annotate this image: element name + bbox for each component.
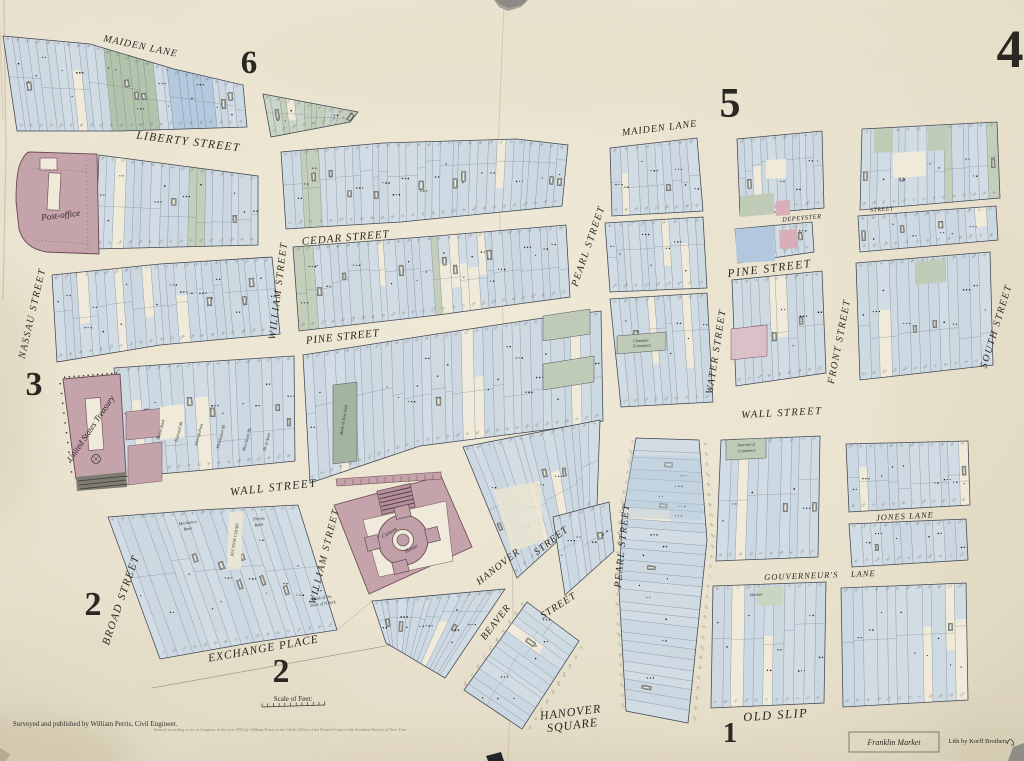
svg-text:60: 60 [568, 664, 572, 668]
svg-text:100: 100 [556, 681, 560, 687]
svg-text:5: 5 [720, 81, 741, 127]
svg-text:Lith by Korff Brothers: Lith by Korff Brothers [949, 738, 1008, 745]
svg-text:4: 4 [997, 19, 1024, 79]
svg-text:1: 1 [723, 717, 738, 749]
svg-text:Bank: Bank [254, 522, 263, 528]
svg-text:140: 140 [562, 672, 566, 678]
svg-text:128: 128 [545, 698, 549, 704]
svg-text:Entered according to act of Co: Entered according to act of Congress in … [154, 727, 408, 732]
svg-text:Market: Market [749, 592, 763, 598]
svg-text:19: 19 [534, 717, 538, 721]
svg-text:18: 18 [528, 725, 532, 729]
svg-text:18: 18 [501, 629, 505, 633]
svg-text:Franklin Market: Franklin Market [866, 738, 921, 747]
svg-text:131: 131 [514, 611, 518, 617]
svg-text:24: 24 [476, 664, 480, 668]
svg-text:3: 3 [26, 366, 43, 403]
svg-text:18: 18 [573, 655, 577, 659]
svg-text:67: 67 [482, 655, 486, 659]
svg-text:99: 99 [507, 620, 511, 624]
svg-text:107: 107 [551, 689, 555, 695]
svg-text:102: 102 [463, 681, 467, 687]
svg-text:67: 67 [579, 646, 583, 650]
svg-text:Commerce: Commerce [738, 448, 757, 454]
svg-text:Commerce: Commerce [633, 343, 652, 349]
svg-text:6: 6 [241, 45, 258, 81]
svg-text:2: 2 [85, 586, 102, 623]
svg-text:Scale of Feet:: Scale of Feet: [274, 695, 313, 703]
svg-text:Journal of: Journal of [737, 441, 756, 447]
svg-text:2: 2 [273, 653, 290, 690]
svg-text:75: 75 [470, 673, 474, 677]
svg-text:64: 64 [495, 638, 499, 642]
svg-text:132: 132 [488, 646, 492, 652]
svg-text:45: 45 [520, 603, 524, 607]
